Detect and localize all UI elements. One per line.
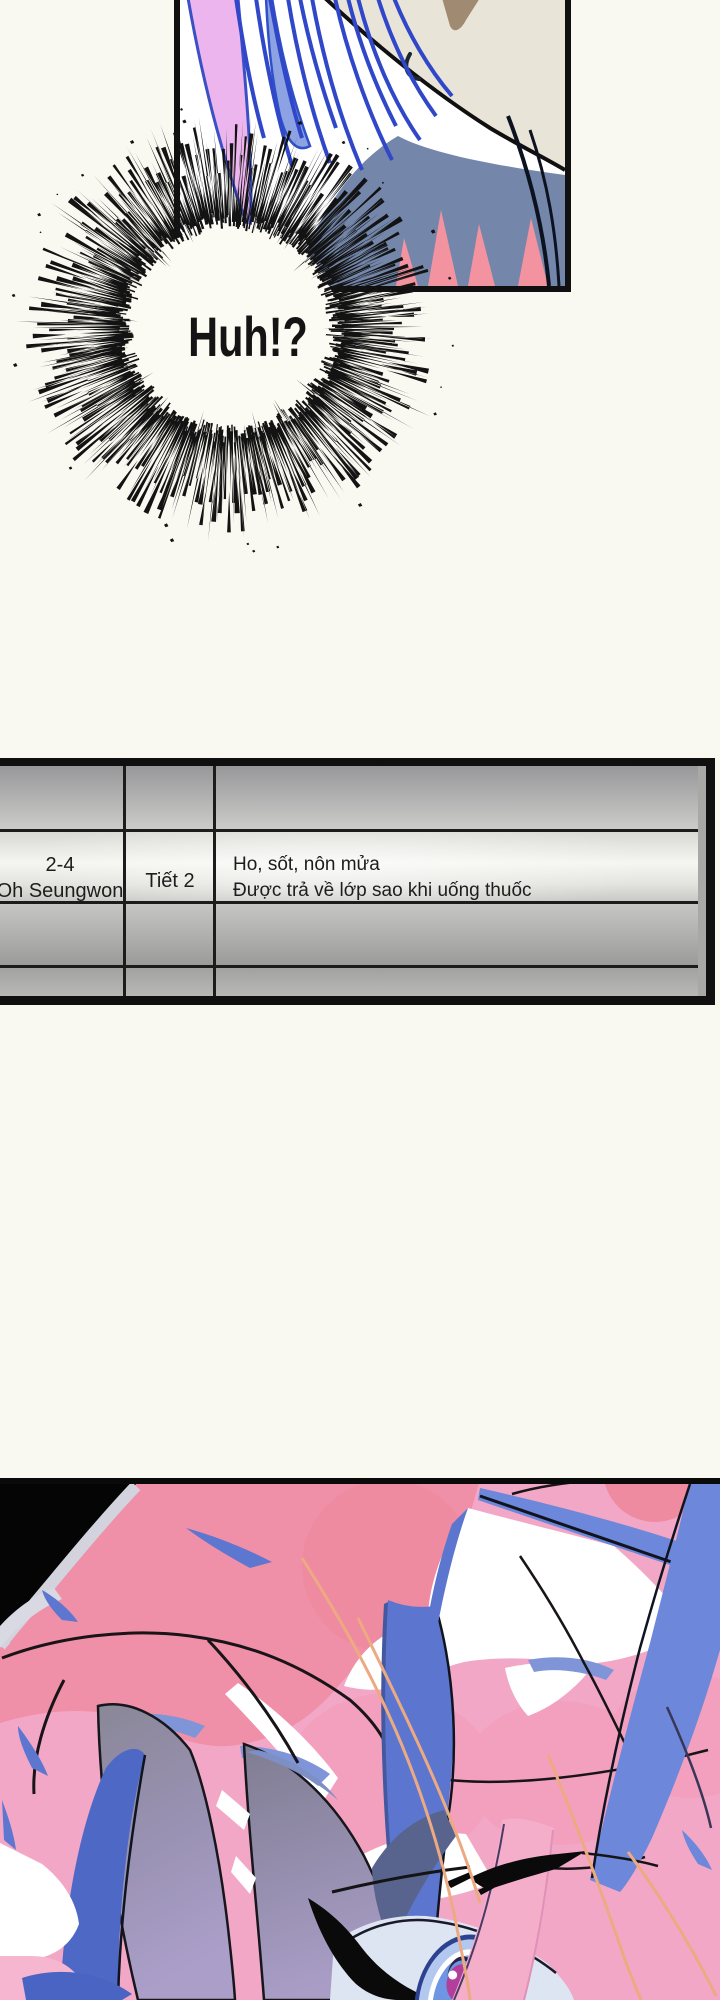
svg-text:Huh!?: Huh!? xyxy=(188,306,308,369)
